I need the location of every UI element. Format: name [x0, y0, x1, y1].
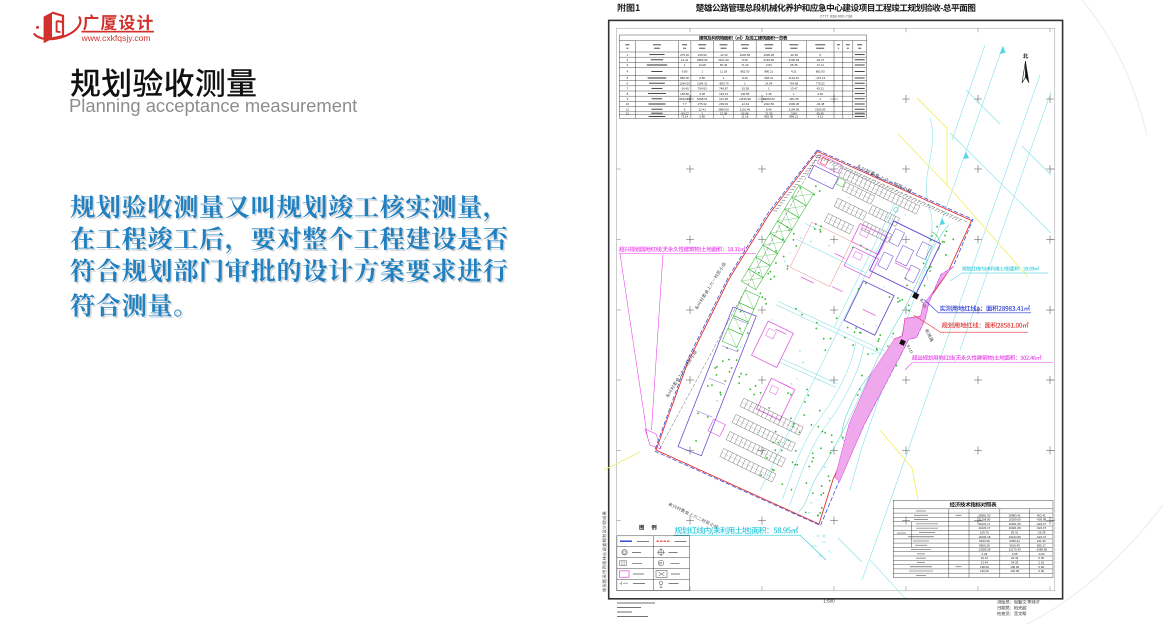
svg-text:239.93: 239.93: [719, 102, 728, 106]
svg-text:1032.56: 1032.56: [740, 53, 751, 57]
svg-text:2194.90: 2194.90: [764, 58, 775, 62]
svg-text:148.86: 148.86: [680, 92, 689, 96]
svg-text:2: 2: [819, 97, 821, 101]
svg-text:-32.48: -32.48: [816, 102, 825, 106]
svg-text:-107.13: -107.13: [815, 76, 825, 80]
svg-text:764.85: 764.85: [789, 81, 798, 85]
svg-text:72.14: 72.14: [681, 115, 689, 119]
svg-text:3.84: 3.84: [766, 63, 772, 67]
svg-text:4: 4: [627, 70, 629, 74]
svg-text:Planning acceptance measuremen: Planning acceptance measurement: [69, 95, 357, 116]
svg-text:1006.28: 1006.28: [764, 53, 775, 57]
svg-text:764.93: 764.93: [698, 87, 707, 91]
svg-text:6: 6: [819, 53, 821, 57]
svg-text:120.00: 120.00: [980, 569, 989, 573]
svg-text:2101.46: 2101.46: [718, 58, 729, 62]
svg-text:1194.31: 1194.31: [697, 81, 708, 85]
svg-text:72.14: 72.14: [817, 63, 825, 67]
svg-text:1: 1: [627, 53, 629, 57]
svg-text:-12.43: -12.43: [741, 102, 750, 106]
svg-text:2860.00: 2860.00: [697, 58, 708, 62]
svg-text:5498.51: 5498.51: [697, 97, 708, 101]
svg-text:886.21: 886.21: [764, 70, 773, 74]
svg-text:1032.56: 1032.56: [764, 102, 775, 106]
svg-text:7.7: 7.7: [683, 102, 687, 106]
svg-text:1006.28: 1006.28: [789, 102, 800, 106]
svg-text:-94.27: -94.27: [816, 58, 825, 62]
svg-text:10: 10: [626, 102, 630, 106]
svg-text:882.00: 882.00: [680, 76, 689, 80]
svg-text:5: 5: [627, 76, 629, 80]
svg-text:1: 1: [701, 70, 703, 74]
svg-text:13.47: 13.47: [790, 87, 798, 91]
svg-text:8024.44: 8024.44: [679, 97, 690, 101]
svg-text:1: 1: [684, 63, 686, 67]
svg-text:12: 12: [626, 111, 630, 115]
svg-text:8.40: 8.40: [742, 76, 748, 80]
svg-text:-961.56: -961.56: [789, 97, 799, 101]
svg-text:1.46: 1.46: [766, 92, 772, 96]
svg-text:239.93: 239.93: [698, 53, 707, 57]
svg-text:1134.42: 1134.42: [789, 76, 800, 80]
svg-text:11195.98: 11195.98: [739, 97, 751, 101]
svg-text:120.00: 120.00: [1010, 569, 1019, 573]
svg-text:1: 1: [723, 76, 725, 80]
svg-text:-15.38: -15.38: [741, 87, 750, 91]
svg-text:6: 6: [627, 81, 629, 85]
svg-text:6.80: 6.80: [682, 70, 688, 74]
svg-text:1: 1: [744, 81, 746, 85]
svg-text:7: 7: [627, 87, 629, 91]
svg-text:882.93: 882.93: [816, 70, 825, 74]
svg-text:862.00: 862.00: [740, 70, 749, 74]
svg-text:-883.79: -883.79: [719, 81, 729, 85]
svg-text:141.28: 141.28: [719, 97, 728, 101]
svg-text:2: 2: [627, 58, 629, 62]
svg-text:149.13: 149.13: [719, 92, 728, 96]
svg-text:P: P: [659, 561, 662, 566]
svg-text:775.02: 775.02: [816, 81, 825, 85]
svg-text:43.21: 43.21: [817, 87, 825, 91]
svg-text:8: 8: [627, 92, 629, 96]
svg-text:0.08: 0.08: [699, 92, 705, 96]
svg-text:4.21: 4.21: [791, 70, 797, 74]
svg-text:8.46: 8.46: [742, 58, 748, 62]
svg-text:6.80: 6.80: [699, 115, 705, 119]
svg-text:71.33: 71.33: [741, 63, 749, 67]
svg-text:-32.48: -32.48: [790, 53, 799, 57]
svg-text:2777.938-000.738: 2777.938-000.738: [820, 14, 853, 19]
svg-text:65.45: 65.45: [790, 63, 798, 67]
svg-text:12.08: 12.08: [699, 63, 707, 67]
svg-text:1: 1: [768, 87, 770, 91]
svg-text:1: 1: [793, 92, 795, 96]
svg-text:275.32: 275.32: [698, 102, 707, 106]
svg-text:862.00: 862.00: [764, 115, 773, 119]
svg-text:11.18: 11.18: [741, 115, 748, 119]
svg-text:www.cxkfqsjy.com: www.cxkfqsjy.com: [81, 33, 151, 43]
svg-text:1294.93: 1294.93: [679, 81, 690, 85]
svg-text:0.00: 0.00: [1038, 569, 1044, 573]
svg-text:11.18: 11.18: [720, 70, 727, 74]
svg-text:-12.43: -12.43: [719, 53, 728, 57]
svg-text:4.94: 4.94: [817, 92, 823, 96]
svg-text:948.31: 948.31: [764, 76, 773, 80]
svg-text:65.46: 65.46: [720, 63, 728, 67]
svg-text:14.54: 14.54: [765, 81, 773, 85]
svg-text:1:500: 1:500: [823, 599, 835, 604]
svg-text:12.41: 12.41: [681, 58, 689, 62]
svg-text:275.32: 275.32: [680, 53, 689, 57]
svg-text:10208.00: 10208.00: [763, 97, 775, 101]
svg-text:130.85: 130.85: [740, 92, 749, 96]
svg-text:3: 3: [627, 63, 629, 67]
svg-text:9: 9: [627, 97, 629, 101]
svg-text:-14.40: -14.40: [680, 87, 689, 91]
svg-text:2100.83: 2100.83: [789, 58, 800, 62]
svg-text:886.21: 886.21: [789, 115, 798, 119]
svg-text:748.87: 748.87: [719, 87, 728, 91]
svg-text:4.21: 4.21: [817, 115, 823, 119]
svg-text:0.80: 0.80: [699, 76, 705, 80]
